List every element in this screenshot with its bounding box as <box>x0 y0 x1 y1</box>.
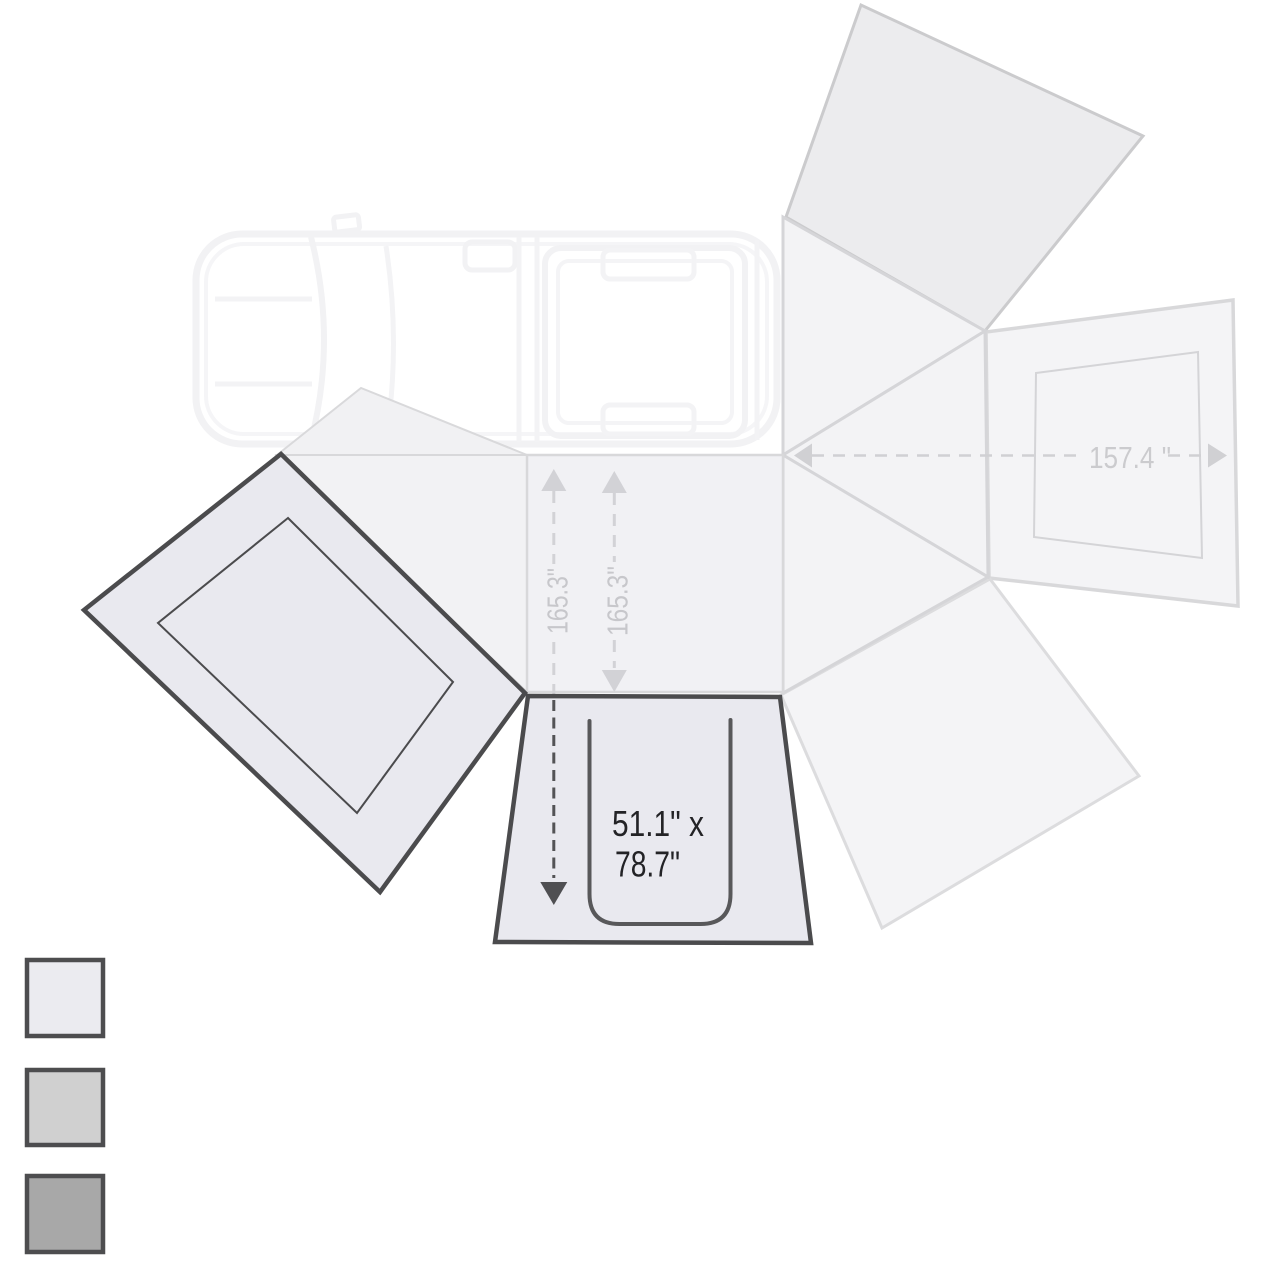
svg-text:78.7": 78.7" <box>615 844 680 885</box>
svg-text:165.3": 165.3" <box>543 568 575 634</box>
svg-text:157.4 ": 157.4 " <box>1089 440 1171 475</box>
svg-text:51.1" x: 51.1" x <box>612 803 704 844</box>
svg-text:165.3": 165.3" <box>603 566 635 636</box>
